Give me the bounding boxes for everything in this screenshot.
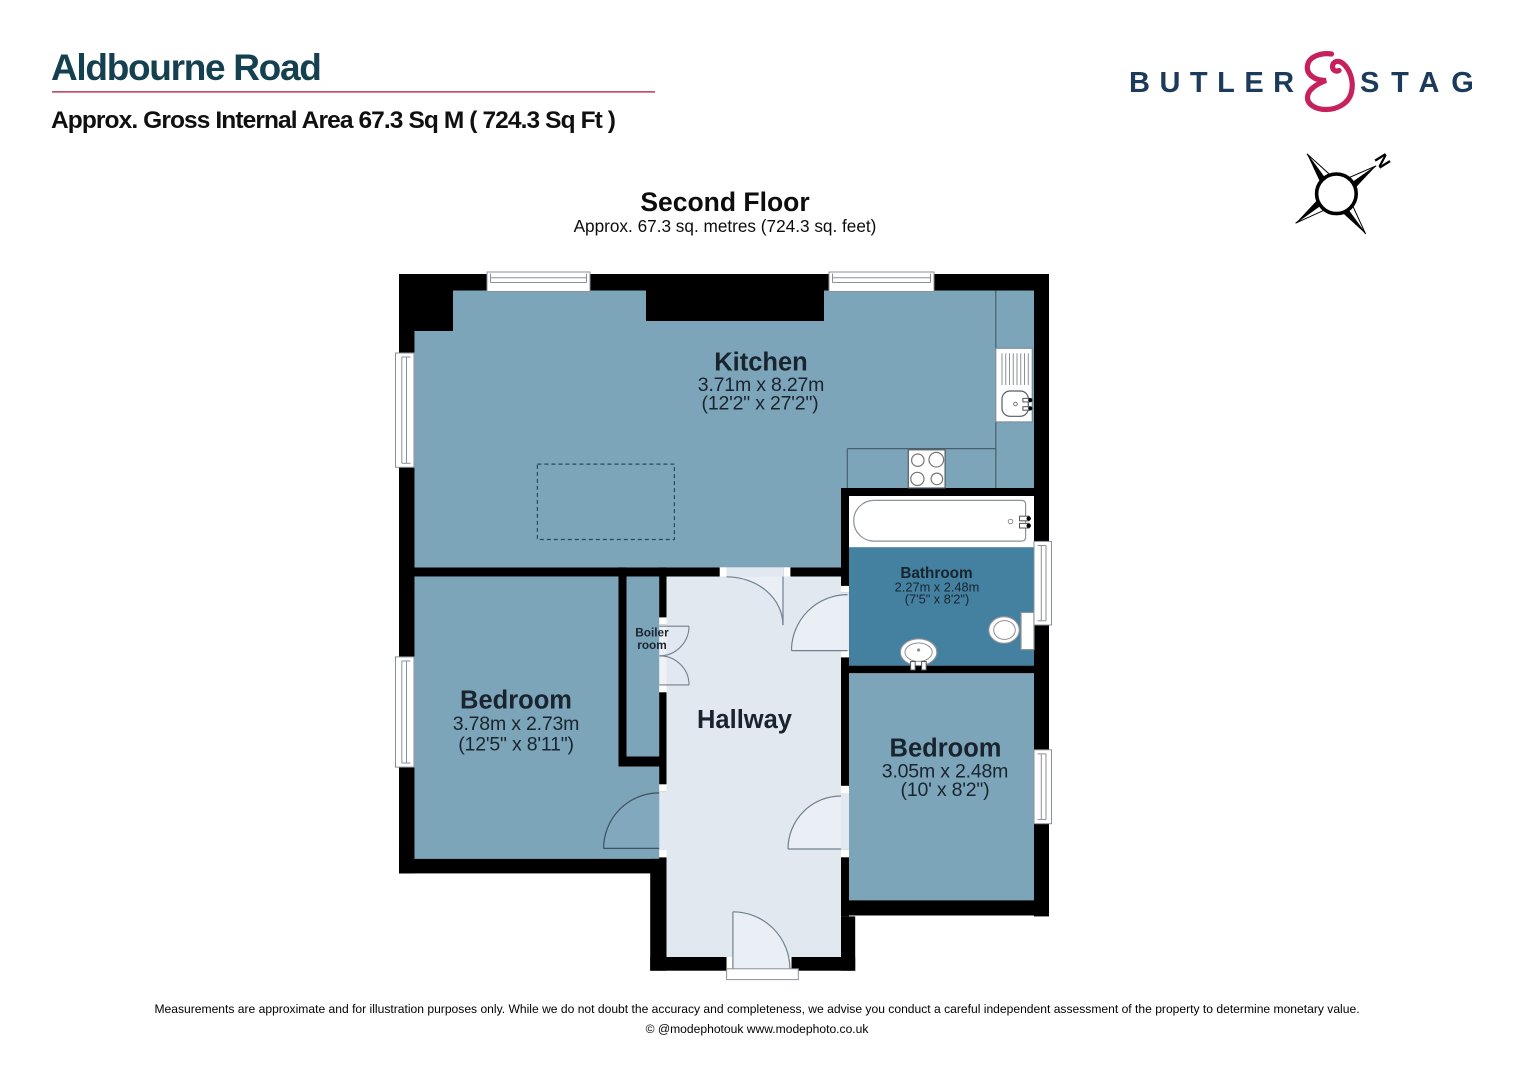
svg-text:Hallway: Hallway — [697, 706, 793, 734]
svg-text:room: room — [637, 638, 667, 652]
svg-text:3.78m x 2.73m: 3.78m x 2.73m — [453, 713, 579, 735]
svg-text:Approx. Gross Internal Area 67: Approx. Gross Internal Area 67.3 Sq M ( … — [51, 107, 615, 134]
svg-text:Approx. 67.3 sq. metres (724.3: Approx. 67.3 sq. metres (724.3 sq. feet) — [574, 216, 877, 236]
svg-text:(7'5" x 8'2"): (7'5" x 8'2") — [905, 592, 969, 607]
svg-text:Bedroom: Bedroom — [890, 734, 1002, 762]
svg-text:Aldbourne Road: Aldbourne Road — [51, 47, 321, 88]
svg-text:STAG: STAG — [1360, 67, 1486, 99]
svg-text:Second Floor: Second Floor — [640, 187, 809, 217]
svg-text:(12'2" x 27'2"): (12'2" x 27'2") — [702, 392, 819, 414]
svg-text:(10' x 8'2"): (10' x 8'2") — [901, 779, 990, 801]
svg-text:Measurements are approximate a: Measurements are approximate and for ill… — [154, 1002, 1359, 1016]
svg-text:(12'5" x 8'11"): (12'5" x 8'11") — [458, 734, 574, 756]
svg-text:Bedroom: Bedroom — [460, 686, 572, 714]
svg-text:Kitchen: Kitchen — [714, 348, 808, 376]
svg-text:BUTLER: BUTLER — [1129, 67, 1304, 99]
svg-text:© @modephotouk www.modephoto.c: © @modephotouk www.modephoto.co.uk — [646, 1022, 870, 1036]
